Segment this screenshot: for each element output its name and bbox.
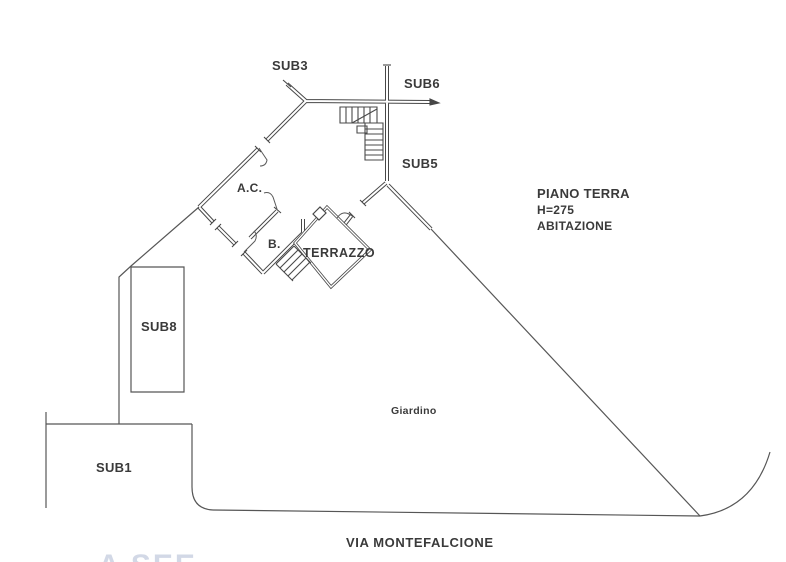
label-room-bath: B. <box>268 237 281 251</box>
labels: SUB3 SUB6 SUB5 A.C. B. TERRAZZO SUB8 SUB… <box>96 58 630 562</box>
watermark-logo: A SEE <box>98 549 197 562</box>
label-sub8: SUB8 <box>141 319 177 334</box>
boundary-street-line <box>213 510 700 516</box>
label-sub3: SUB3 <box>272 58 308 73</box>
boundary-east-curve <box>700 452 770 516</box>
boundary-lines <box>46 207 770 516</box>
title-height: H=275 <box>537 203 574 217</box>
boundary-sub1-curve <box>192 424 213 510</box>
title-block: PIANO TERRA H=275 ABITAZIONE <box>537 186 630 233</box>
label-garden: Giardino <box>391 405 437 417</box>
label-terrace: TERRAZZO <box>303 246 375 260</box>
label-street: VIA MONTEFALCIONE <box>346 535 494 550</box>
floor-plan-canvas: SUB3 SUB6 SUB5 A.C. B. TERRAZZO SUB8 SUB… <box>0 0 786 562</box>
title-floor: PIANO TERRA <box>537 186 630 201</box>
building-walls <box>199 66 431 273</box>
boundary-garden-diagonal <box>431 229 700 516</box>
label-sub5: SUB5 <box>402 156 438 171</box>
label-sub6: SUB6 <box>404 76 440 91</box>
scanned-floor-plan-sheet: SUB3 SUB6 SUB5 A.C. B. TERRAZZO SUB8 SUB… <box>0 0 786 562</box>
label-room-ac: A.C. <box>237 181 262 195</box>
staircase-main <box>340 107 383 160</box>
title-use: ABITAZIONE <box>537 219 612 233</box>
label-sub1: SUB1 <box>96 460 132 475</box>
